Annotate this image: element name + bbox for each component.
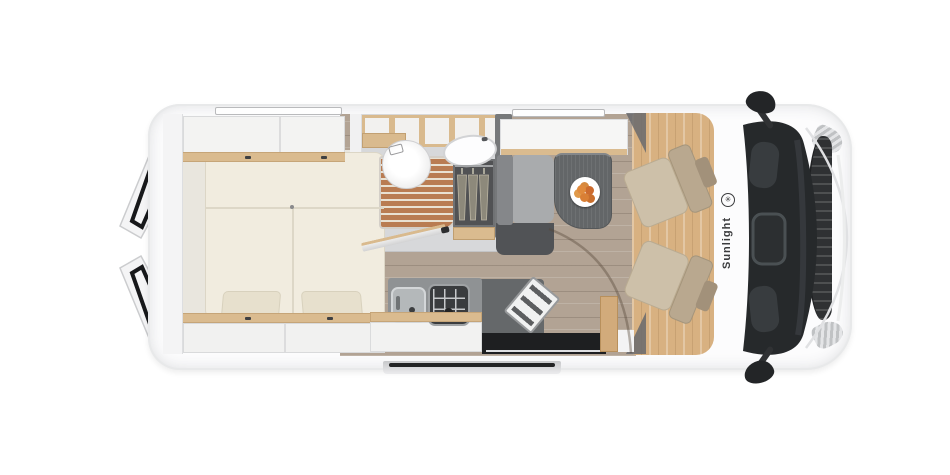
rear-wall: [163, 114, 183, 354]
locker-handle: [245, 156, 251, 159]
mattress-seam: [206, 207, 384, 209]
locker-handle: [245, 317, 251, 320]
bench-pedestal: [496, 223, 554, 255]
sink-tap: [481, 137, 487, 142]
faucet: [396, 296, 400, 310]
brand-label: Sunlight: [721, 198, 735, 288]
entry-sill: [486, 350, 602, 352]
fruit: [577, 185, 586, 194]
mattress-button: [290, 205, 294, 209]
wardrobe: [453, 159, 495, 227]
camper-floorplan: ✳ Sunlight: [0, 0, 950, 475]
entry-wood-pillar: [600, 296, 618, 352]
toilet: [382, 140, 431, 189]
overhead-locker-dinette: [500, 119, 628, 155]
overhead-locker-rear-top: [183, 116, 345, 154]
locker-handle: [321, 156, 327, 159]
entry-b-pillar: [618, 330, 634, 352]
rear-window-strip: [215, 107, 342, 115]
step-tread: [389, 363, 555, 367]
locker-handle: [327, 317, 333, 320]
kitchen-wood-rail: [370, 312, 482, 322]
locker-wood-rail: [183, 152, 345, 162]
toilet-lid-mark: [388, 143, 404, 155]
exterior-entry-step: [383, 361, 561, 374]
kitchen-cabinet-front: [370, 322, 482, 352]
fruit-plate: [570, 177, 600, 207]
locker-wood-rail: [183, 313, 385, 323]
entry-door-opening: [482, 333, 606, 354]
dinette-window-strip: [512, 109, 605, 117]
wardrobe-drawer: [453, 227, 495, 240]
bench-seat: [513, 155, 554, 223]
mattress-seam: [292, 209, 294, 319]
front-grille: [806, 136, 832, 320]
overhead-locker-rear-bottom: [183, 323, 385, 353]
locker-divider: [284, 324, 286, 352]
locker-divider: [279, 117, 281, 153]
bench-backrest: [497, 155, 513, 225]
